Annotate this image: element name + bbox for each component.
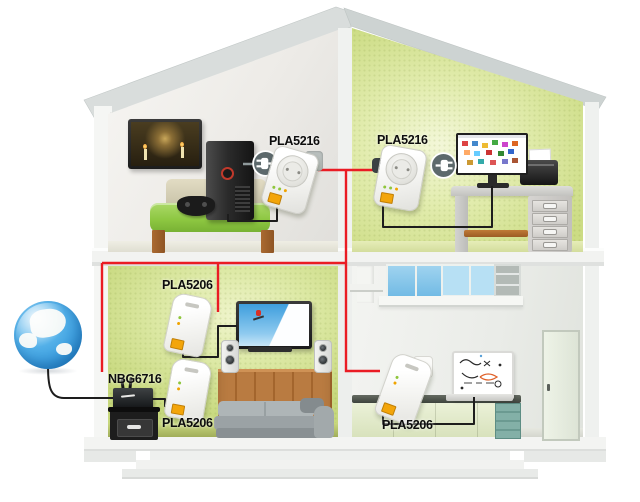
status-leds bbox=[272, 185, 287, 192]
label-pla5206-living-tv: PLA5206 bbox=[162, 279, 213, 292]
internet-line-globe-to-router bbox=[48, 366, 113, 398]
powerline-home-network-diagram: PLA5216 PLA5216 PLA5206 NBG6716 PLA5206 … bbox=[0, 0, 640, 502]
brand-logo bbox=[184, 367, 198, 373]
cabling-overlay bbox=[0, 0, 640, 502]
status-leds bbox=[177, 381, 182, 390]
label-nbg6716: NBG6716 bbox=[108, 373, 162, 386]
ethernet-cable-router-to-adapter bbox=[152, 399, 165, 407]
ethernet-port bbox=[380, 192, 395, 204]
ethernet-port bbox=[171, 403, 186, 415]
label-pla5216-upper-left: PLA5216 bbox=[269, 135, 320, 148]
ethernet-port bbox=[170, 338, 185, 350]
label-pla5206-kitchen: PLA5206 bbox=[382, 419, 433, 432]
powerline-links bbox=[102, 170, 384, 372]
passthrough-socket bbox=[273, 152, 313, 192]
brand-logo bbox=[405, 363, 420, 372]
status-leds bbox=[393, 375, 399, 384]
ethernet-port bbox=[267, 192, 282, 205]
brand-logo bbox=[185, 302, 200, 309]
label-pla5216-upper-right: PLA5216 bbox=[377, 134, 428, 147]
status-leds bbox=[383, 185, 398, 191]
ethernet-port bbox=[381, 402, 397, 416]
label-pla5206-living-router: PLA5206 bbox=[162, 417, 213, 430]
status-leds bbox=[177, 316, 182, 325]
internet-globe-icon bbox=[14, 301, 82, 369]
passthrough-socket bbox=[383, 151, 420, 188]
power-plug-icon bbox=[430, 152, 457, 179]
